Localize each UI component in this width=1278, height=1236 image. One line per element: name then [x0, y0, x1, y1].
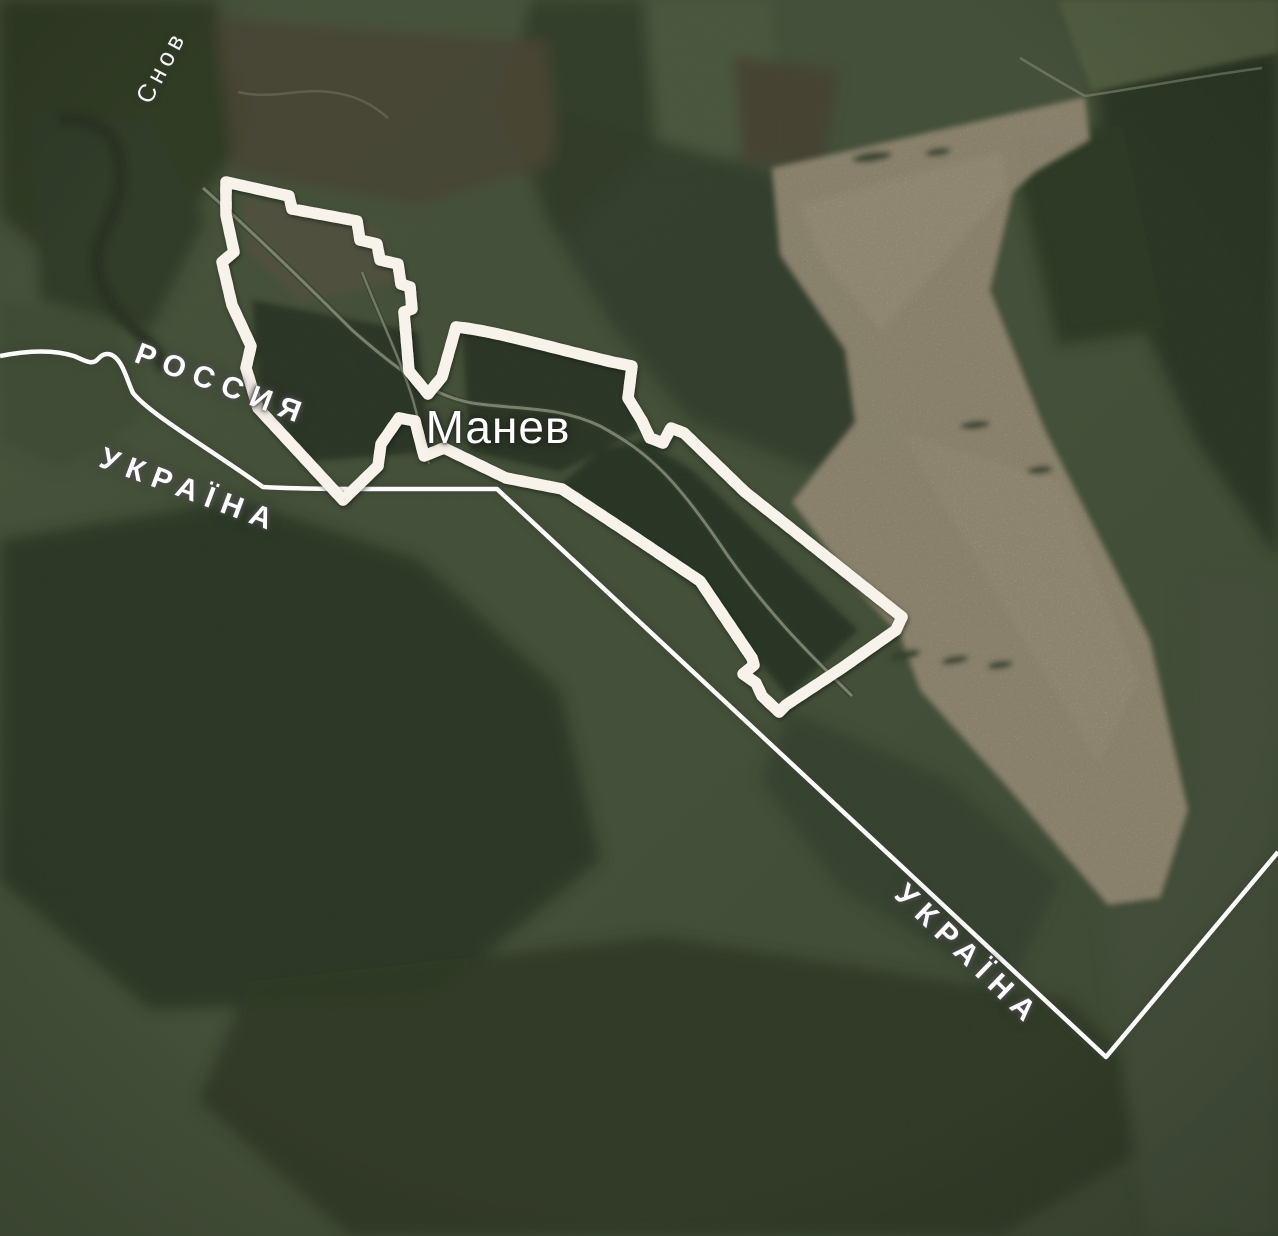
satellite-map-canvas[interactable]: Снов РОССИЯ УКРАЇНА Манев УКРАЇНА	[0, 0, 1278, 1236]
settlement-label-manev: Манев	[426, 400, 571, 454]
satellite-imagery	[0, 0, 1278, 1236]
